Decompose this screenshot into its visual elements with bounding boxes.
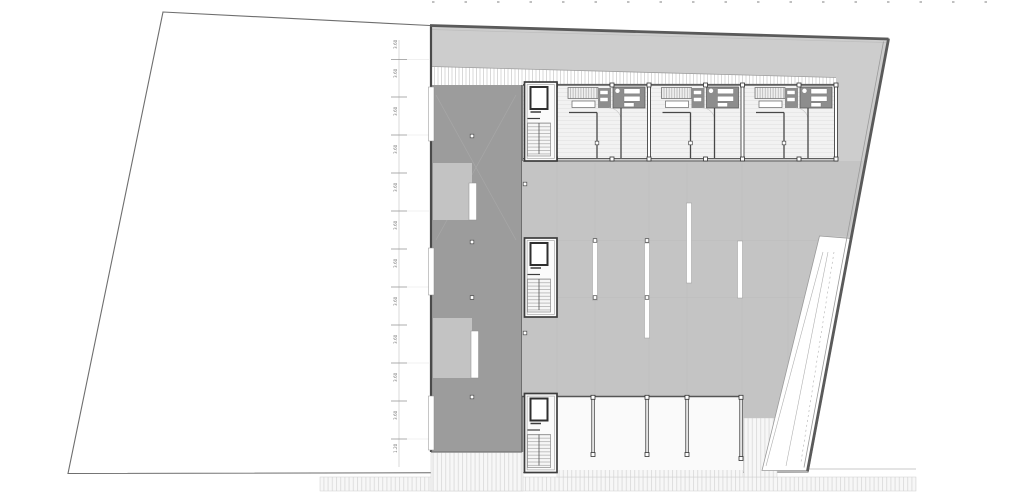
skylight-slot	[687, 203, 692, 283]
spine-room-upper	[433, 163, 472, 220]
stair-core-middle	[525, 238, 558, 317]
column-marker	[470, 395, 474, 399]
pavement-strip-bottom	[320, 477, 916, 491]
column-marker	[593, 239, 597, 243]
bay-wall	[592, 397, 595, 455]
floor-plan-canvas: 3.60 3.60 3.60 3.60 3.60 3.60 3.60 3.60 …	[0, 0, 1024, 500]
dimension-label: 3.60	[393, 258, 398, 268]
dimension-label: 3.60	[393, 39, 398, 49]
dimension-label: 3.60	[393, 220, 398, 230]
column-marker	[470, 240, 474, 244]
dimension-label: 3.60	[393, 144, 398, 154]
party-wall	[741, 85, 744, 159]
spine-window-2	[429, 248, 435, 295]
floor-plan-drawing: 3.60 3.60 3.60 3.60 3.60 3.60 3.60 3.60 …	[0, 0, 1024, 500]
spine-door-slot-lower	[471, 331, 479, 378]
spine-fill	[431, 85, 522, 452]
bay-wall	[646, 397, 649, 455]
party-wall	[648, 85, 651, 159]
dimension-label: 1.20	[393, 443, 398, 453]
skylight-slot	[645, 243, 650, 338]
bay-wall	[686, 397, 689, 455]
bay-wall	[740, 397, 743, 459]
column-marker	[645, 296, 649, 300]
column-marker	[470, 296, 474, 300]
bays-floor	[557, 397, 743, 470]
column-marker	[645, 239, 649, 243]
column-marker	[470, 134, 474, 138]
stair-core-top	[525, 82, 558, 161]
dimension-label: 3.60	[393, 68, 398, 78]
dimension-label: 3.60	[393, 410, 398, 420]
party-wall	[835, 85, 838, 159]
spine-window-3	[429, 396, 435, 450]
spine-window-1	[429, 87, 435, 141]
column-marker	[523, 182, 527, 186]
residential-wing	[523, 83, 838, 161]
dimension-label: 3.60	[393, 182, 398, 192]
skylight-slot	[593, 241, 598, 300]
column-marker	[523, 331, 527, 335]
spine-door-slot-upper	[469, 183, 477, 220]
column-marker	[593, 296, 597, 300]
service-spine	[429, 26, 523, 452]
dimension-label: 3.60	[393, 296, 398, 306]
dimension-label: 3.60	[393, 334, 398, 344]
spine-room-lower	[433, 318, 472, 378]
dimension-label: 3.60	[393, 106, 398, 116]
skylight-slot	[738, 241, 743, 298]
stair-core-bottom	[525, 394, 558, 473]
dimension-label: 3.60	[393, 372, 398, 382]
pavement-under-spine	[431, 453, 523, 492]
